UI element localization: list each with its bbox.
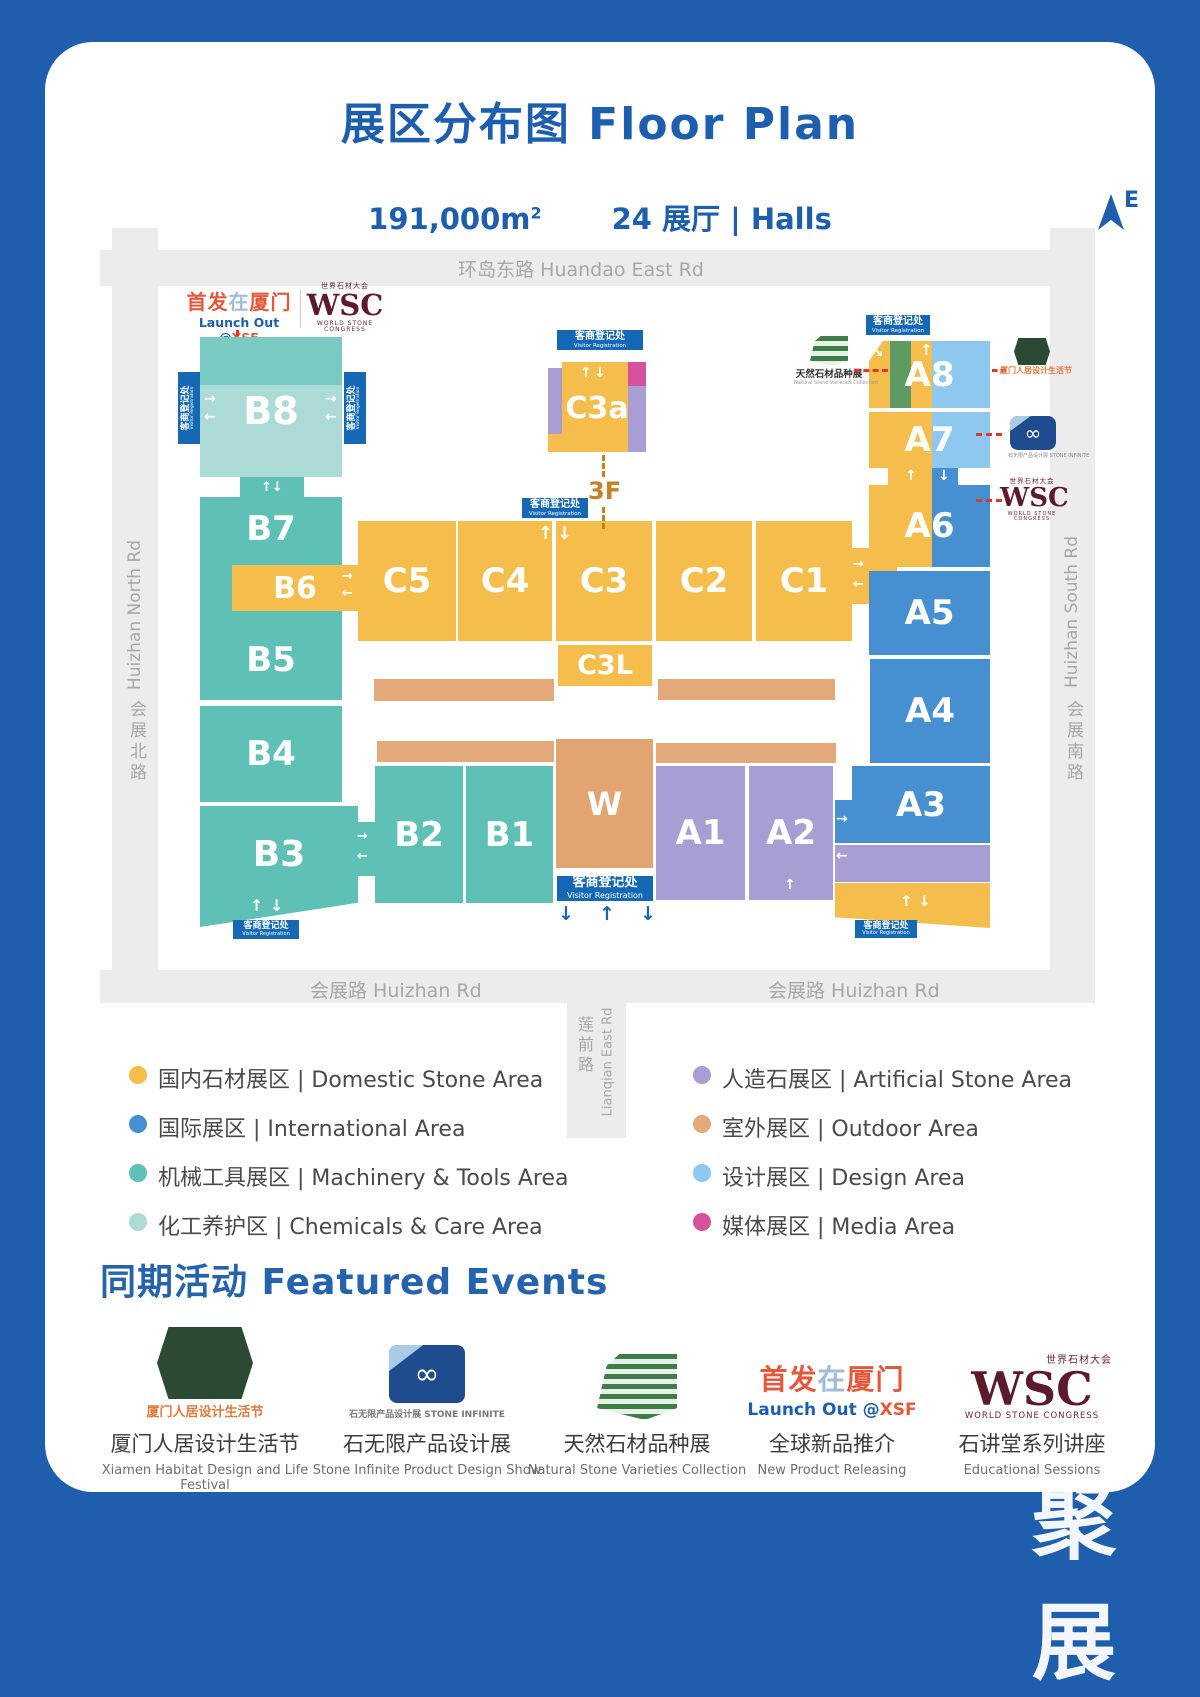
road-huizhan-south-label-cn: 会展南路 — [1061, 700, 1086, 784]
hall-c3a-media-block — [628, 362, 646, 386]
stone-infinite-event-icon: ∞ — [389, 1345, 465, 1403]
legend-dot-domestic — [129, 1066, 147, 1084]
arrow-down-icon: ↓ — [270, 898, 283, 914]
arrow-up-icon: ↑ — [599, 905, 615, 924]
arrow-down-icon: ↓ — [594, 366, 606, 380]
legend-dot-chemicals — [129, 1213, 147, 1231]
page-subtitle: 191,000m224 展厅 | Halls — [0, 196, 1200, 238]
event-stone-infinite: ∞ 石无限产品设计展 STONE INFINITE 石无限产品设计展 Stone… — [307, 1318, 547, 1478]
visitor-registration-badge-c3a: 客商登记处Visitor Registration — [557, 330, 643, 350]
hall-b6: B6 — [232, 565, 358, 611]
visitor-registration-badge-b3: 客商登记处Visitor Registration — [233, 920, 299, 939]
road-huizhan-label-east: 会展路 Huizhan Rd — [768, 976, 940, 1003]
arrow-down-icon: ↓ — [918, 894, 931, 909]
legend-label-international: 国际展区 | International Area — [158, 1111, 465, 1143]
halls-count: 24 展厅 | Halls — [612, 202, 832, 236]
arrow-left-icon: ← — [204, 410, 216, 424]
arrow-down-icon: ↓ — [640, 905, 656, 924]
legend-dot-design — [693, 1164, 711, 1182]
hall-a1: A1 — [656, 766, 745, 900]
area-value: 191,000m2 — [368, 202, 541, 236]
visitor-registration-badge-b8-right: 客商登记处Visitor Registration — [344, 372, 366, 444]
arrow-right-icon: → — [342, 570, 353, 583]
natural-stone-dash — [854, 369, 888, 372]
hall-c3l: C3L — [558, 645, 652, 686]
xiamen-habitat-event-icon — [157, 1327, 253, 1399]
event-xiamen-habitat: 厦门人居设计生活节 厦门人居设计生活节 Xiamen Habitat Desig… — [85, 1318, 325, 1493]
legend-dot-artificial — [693, 1066, 711, 1084]
arrow-down-icon: ↓ — [558, 905, 574, 924]
hall-a5: A5 — [869, 571, 990, 655]
arrow-right-icon: → — [357, 830, 368, 843]
road-huizhan-north-label-en: Huizhan North Rd — [125, 540, 145, 690]
outdoor-strip-3 — [377, 741, 554, 762]
arrow-left-icon: ← — [836, 849, 848, 863]
hall-c3a-label: C3a — [548, 390, 646, 426]
visitor-registration-badge-a3: 客商登记处Visitor Registration — [855, 920, 917, 938]
road-lianqian-label-en: Lianqian East Rd — [601, 1008, 616, 1117]
xiamen-habitat-icon — [1014, 338, 1050, 365]
legend-label-chemicals: 化工养护区 | Chemicals & Care Area — [158, 1209, 543, 1241]
road-lianqian-label-cn: 莲前路 — [572, 1016, 596, 1076]
arrow-up-icon: ↑ — [784, 878, 796, 892]
road-huandao-east-label: 环岛东路 Huandao East Rd — [458, 255, 704, 282]
arrow-left-icon: ← — [342, 587, 353, 600]
outdoor-strip-4 — [656, 743, 836, 763]
natural-stone-event-icon — [597, 1354, 677, 1420]
hall-c1: C1 — [756, 521, 852, 641]
logo-divider — [300, 290, 301, 328]
hall-w: W — [556, 739, 653, 868]
stone-infinite-icon: ∞ — [1010, 416, 1056, 450]
road-huizhan-label-west: 会展路 Huizhan Rd — [310, 976, 482, 1003]
juzhan-watermark: 聚展 — [1032, 1455, 1200, 1697]
arrow-up-icon: ↑ — [580, 366, 592, 380]
hall-c3a-foot — [548, 434, 562, 452]
arrow-up-icon: ↑ — [905, 469, 917, 483]
events-title: 同期活动 Featured Events — [100, 1253, 608, 1305]
legend-dot-international — [129, 1115, 147, 1133]
hall-b1: B1 — [466, 766, 553, 903]
wsc-dash — [976, 499, 1002, 502]
hall-b8-b7-connector: ↑↓ — [240, 477, 304, 497]
arrow-up-icon: ↑ — [250, 898, 263, 914]
hall-c1-a-bridge — [869, 548, 897, 571]
outdoor-strip-1 — [374, 679, 554, 701]
wsc-logo-right: 世界石材大会 WSC WORLD STONE CONGRESS — [1000, 478, 1064, 523]
infinite-dash — [976, 433, 1002, 436]
road-huizhan-north-label-cn: 会展北路 — [124, 700, 149, 784]
hall-a7-label: A7 — [869, 412, 990, 468]
legend-label-media: 媒体展区 | Media Area — [722, 1209, 955, 1241]
xiamen-habitat-logo-small: 厦门人居设计生活节 — [1000, 338, 1064, 376]
hall-b7: B7 — [200, 497, 342, 561]
arrow-right-icon: → — [853, 558, 864, 571]
natural-stone-icon — [810, 336, 848, 366]
outdoor-strip-2 — [658, 679, 835, 700]
hall-b2: B2 — [375, 766, 463, 903]
hall-c2: C2 — [656, 521, 752, 641]
hall-a4: A4 — [870, 659, 990, 763]
hall-b4: B4 — [200, 706, 342, 802]
visitor-registration-badge-w: 客商登记处Visitor Registration — [557, 876, 653, 901]
arrow-up-icon: ↑ — [920, 343, 933, 358]
legend-dot-outdoor — [693, 1115, 711, 1133]
arrow-left-icon: ← — [325, 410, 337, 424]
hall-b8: B8 — [200, 385, 342, 477]
visitor-registration-badge-a8: 客商登记处Visitor Registration — [866, 315, 930, 335]
hall-b5: B5 — [200, 620, 342, 700]
arrow-down-icon: ↓ — [557, 525, 572, 543]
compass-east-label: E — [1124, 188, 1139, 213]
natural-stone-logo: 天然石材品种展 Natural Stone Varieties Collecti… — [794, 336, 864, 386]
arrow-right-icon: → — [204, 392, 216, 406]
legend-dot-machinery — [129, 1164, 147, 1182]
arrow-up-icon: ↑ — [538, 525, 553, 543]
floor-3f-label: 3F — [588, 477, 621, 505]
legend-label-outdoor: 室外展区 | Outdoor Area — [722, 1111, 979, 1143]
arrow-right-icon: → — [325, 392, 337, 406]
hall-a3: A3 — [852, 766, 990, 843]
arrow-right-icon: → — [836, 812, 848, 826]
legend-label-artificial: 人造石展区 | Artificial Stone Area — [722, 1062, 1072, 1094]
road-huizhan-south-label-en: Huizhan South Rd — [1062, 536, 1082, 688]
arrow-up-icon: ↑ — [900, 894, 913, 909]
arrow-left-icon: ← — [853, 578, 864, 591]
legend-label-design: 设计展区 | Design Area — [722, 1160, 965, 1192]
wsc-logo-top: 世界石材大会 WSC WORLD STONE CONGRESS — [304, 283, 386, 333]
legend-label-machinery: 机械工具展区 | Machinery & Tools Area — [158, 1160, 569, 1192]
visitor-registration-badge-c3: 客商登记处Visitor Registration — [522, 498, 588, 518]
hall-a3-artificial-strip — [835, 845, 990, 882]
road-huandao-east: 环岛东路 Huandao East Rd — [100, 250, 1062, 286]
legend-label-domestic: 国内石材展区 | Domestic Stone Area — [158, 1062, 543, 1094]
legend-dot-media — [693, 1213, 711, 1231]
arrow-diagonal-icon: ↘ — [871, 345, 884, 360]
event-wsc: 世界石材大会 WSC WORLD STONE CONGRESS 石讲堂系列讲座 … — [912, 1318, 1152, 1478]
stone-infinite-logo-small: ∞ 石无限产品设计展 STONE INFINITE — [1008, 416, 1058, 459]
visitor-registration-badge-b8-left: 客商登记处Visitor Registration — [178, 372, 200, 444]
hall-b8-top — [200, 337, 342, 385]
page-title: 展区分布图 Floor Plan — [0, 88, 1200, 152]
floor-3f-dash-bottom — [602, 507, 605, 529]
hall-c5: C5 — [358, 521, 456, 641]
arrow-down-icon: ↓ — [938, 469, 950, 483]
floor-3f-dash-top — [602, 455, 605, 477]
arrow-left-icon: ← — [357, 850, 368, 863]
